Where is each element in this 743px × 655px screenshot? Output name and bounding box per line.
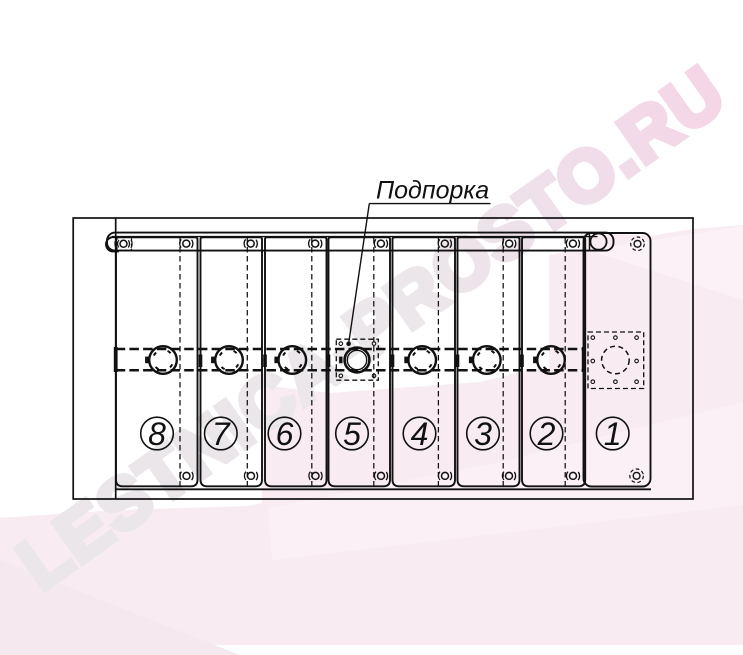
svg-text:7: 7 [212, 416, 231, 452]
svg-text:Подпорка: Подпорка [376, 177, 489, 205]
svg-text:3: 3 [474, 416, 492, 452]
svg-text:2: 2 [537, 416, 556, 452]
svg-text:4: 4 [411, 416, 429, 452]
svg-text:1: 1 [604, 416, 622, 452]
svg-text:5: 5 [343, 416, 361, 452]
svg-text:8: 8 [148, 416, 166, 452]
svg-text:6: 6 [276, 416, 294, 452]
